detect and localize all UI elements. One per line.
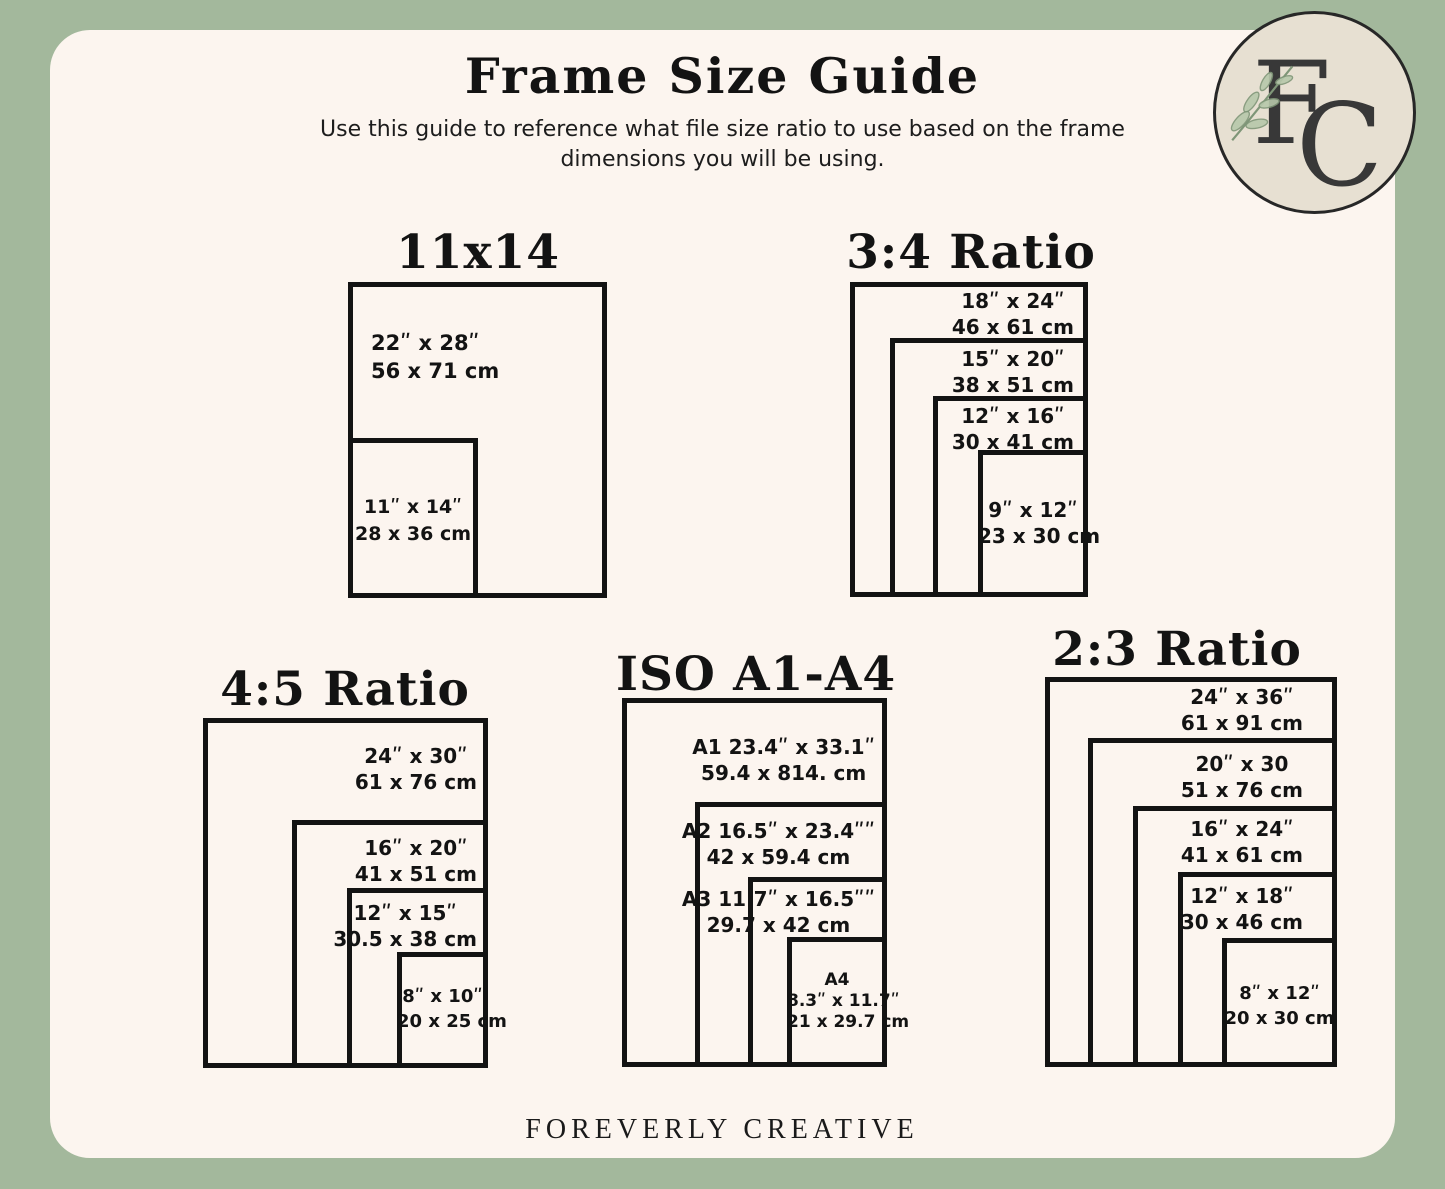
brand-name: FOREVERLY CREATIVE <box>422 1114 1022 1146</box>
frame-size-label: 8ʺ x 10ʺ 20 x 25 cm <box>397 984 488 1034</box>
frame-size-label: 20ʺ x 30 51 x 76 cm <box>1181 751 1303 803</box>
diagram-title-iso-a1-a4: ISO A1-A4 <box>606 651 906 698</box>
frame-size-label: A3 11.7ʺ x 16.5ʺʺ 29.7 x 42 cm <box>682 886 875 938</box>
frame-size-label: 15ʺ x 20ʺ 38 x 51 cm <box>952 346 1074 398</box>
brand-logo: F C <box>1213 11 1416 214</box>
frame-size-label: 16ʺ x 20ʺ 41 x 51 cm <box>355 835 477 887</box>
frame-size-label: 11ʺ x 14ʺ 28 x 36 cm <box>348 494 478 548</box>
frame-size-label: 24ʺ x 30ʺ 61 x 76 cm <box>355 743 477 795</box>
diagram-title-2-3-ratio: 2:3 Ratio <box>1027 626 1327 673</box>
diagram-title-4-5-ratio: 4:5 Ratio <box>195 666 495 713</box>
diagram-title-3-4-ratio: 3:4 Ratio <box>821 229 1121 276</box>
page-subtitle-line2: dimensions you will be using. <box>50 147 1395 173</box>
frame-size-label: A2 16.5ʺ x 23.4ʺʺ 42 x 59.4 cm <box>682 818 875 870</box>
logo-letter-c: C <box>1296 89 1383 203</box>
page-title: Frame Size Guide <box>50 52 1395 101</box>
frame-size-label: 12ʺ x 16ʺ 30 x 41 cm <box>952 403 1074 455</box>
leaf-sprig-icon <box>1224 58 1306 146</box>
frame-size-label: 16ʺ x 24ʺ 41 x 61 cm <box>1181 816 1303 868</box>
frame-size-label: 8ʺ x 12ʺ 20 x 30 cm <box>1222 981 1337 1031</box>
frame-size-guide-page: Frame Size Guide Use this guide to refer… <box>0 0 1445 1189</box>
frame-size-label: 12ʺ x 15ʺ 30.5 x 38 cm <box>333 900 477 952</box>
frame-size-label: 12ʺ x 18ʺ 30 x 46 cm <box>1181 883 1303 935</box>
frame-size-label: 22ʺ x 28ʺ 56 x 71 cm <box>371 329 499 385</box>
frame-size-label: A4 8.3ʺ x 11.7ʺ 21 x 29.7 cm <box>787 970 887 1033</box>
frame-size-label: 9ʺ x 12ʺ 23 x 30 cm <box>978 497 1088 549</box>
diagram-title-11x14: 11x14 <box>328 229 628 276</box>
frame-size-label: 24ʺ x 36ʺ 61 x 91 cm <box>1181 684 1303 736</box>
frame-size-label: 18ʺ x 24ʺ 46 x 61 cm <box>952 288 1074 340</box>
page-subtitle-line1: Use this guide to reference what file si… <box>50 117 1395 143</box>
frame-size-label: A1 23.4ʺ x 33.1ʺ 59.4 x 814. cm <box>692 734 875 786</box>
